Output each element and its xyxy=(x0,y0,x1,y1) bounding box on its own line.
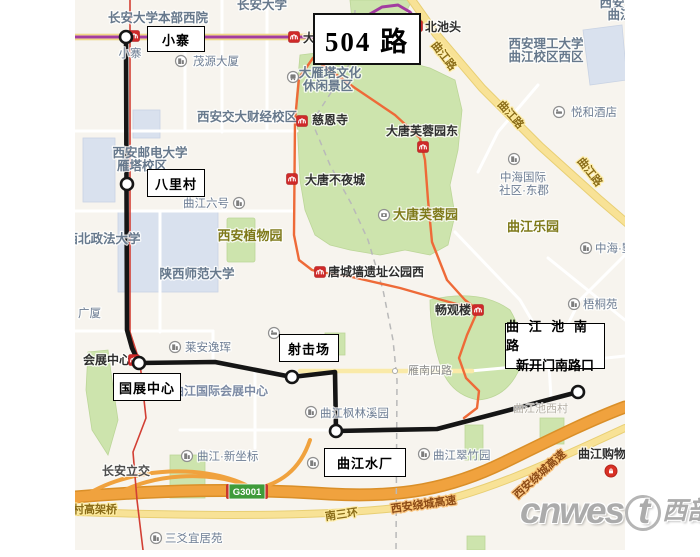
building-icon xyxy=(569,299,580,310)
stop-box-shejichang: 射击场 xyxy=(279,334,339,362)
map-label: 会展中心 xyxy=(83,352,131,367)
map-label: 曲江池西村 xyxy=(513,401,568,415)
metro-station-icon xyxy=(315,267,326,278)
map-label: 雁南四路 xyxy=(408,364,452,377)
metro-station-icon xyxy=(473,305,484,316)
shopping-icon xyxy=(605,465,617,477)
map-label: 北池头 xyxy=(425,19,461,34)
map-label: 曲江枫林溪园 xyxy=(320,406,389,420)
watermark-cjk: 西部网 xyxy=(662,497,700,525)
map-label: 西安交大财经校区 xyxy=(197,109,298,124)
map-label: 休闲景区 xyxy=(302,78,354,93)
map-label: 西北政法大学 xyxy=(75,231,141,246)
hotel-icon xyxy=(554,107,565,118)
map-label: 社区·东郡 xyxy=(499,183,549,197)
route-title: 504 路 xyxy=(325,20,409,59)
stop-box-xiaozhai: 小寨 xyxy=(147,26,205,52)
building-icon xyxy=(581,243,592,254)
map-label: 中海·墅 xyxy=(595,241,625,255)
watermark-t-ring: t xyxy=(625,495,661,531)
stop-box-terminus: 曲 江 池 南 路 新开门南路口 xyxy=(505,323,605,369)
map-label: 广厦 xyxy=(78,307,101,320)
map-label: 曲江乐园 xyxy=(507,219,559,234)
map-label: 大唐芙蓉园 xyxy=(393,207,458,222)
bus-icon xyxy=(288,72,299,83)
map-label: 唐城墙遗址公园西 xyxy=(328,264,424,279)
map-label: 西安理工大学 xyxy=(508,36,584,51)
building-icon xyxy=(151,533,162,544)
metro-station-icon xyxy=(297,116,308,127)
map-label: 大唐芙蓉园东 xyxy=(386,123,458,138)
building-icon xyxy=(306,407,317,418)
route-stop-circle xyxy=(121,178,133,190)
map-label: 大雁塔文化 xyxy=(299,65,362,80)
map-label: 陕西师范大学 xyxy=(159,266,235,281)
map-label: 曲江购物中心 xyxy=(578,446,625,461)
map-label: 慈恩寺 xyxy=(312,112,348,127)
map-label: 三爻村高架桥 xyxy=(75,502,118,516)
map-label: 曲江六号 xyxy=(183,197,229,210)
map-label: 西安植物园 xyxy=(217,228,282,243)
map-label: 长安大学本部西院 xyxy=(108,10,209,25)
route-stop-circle xyxy=(330,425,342,437)
building-icon xyxy=(419,449,430,460)
attraction-icon xyxy=(379,210,390,221)
map-label: 曲江 xyxy=(607,7,625,22)
map-label: 长安大学 xyxy=(237,0,288,12)
map-label: 曲江翠竹园 xyxy=(433,448,491,462)
stop-label: 八里村 xyxy=(155,174,197,193)
route-stop-circle xyxy=(133,357,145,369)
map-label: 西安邮电大学 xyxy=(112,145,188,160)
g3001-badge-text: G3001 xyxy=(233,487,262,498)
hotel-icon xyxy=(269,328,280,339)
stop-box-qujiangshuichang: 曲江水厂 xyxy=(324,448,406,477)
metro-station-icon xyxy=(287,174,298,185)
map-label: 曲江·新坐标 xyxy=(197,449,258,463)
map-label: 曲江国际会展中心 xyxy=(172,383,268,398)
watermark-latin: cnwes xyxy=(520,490,623,531)
stop-box-guozhanzhongxin: 国展中心 xyxy=(113,373,181,401)
building-icon xyxy=(182,451,193,462)
stop-label: 小寨 xyxy=(162,30,190,49)
building-icon xyxy=(308,458,319,469)
metro-station-icon xyxy=(418,142,429,153)
route-title-box: 504 路 xyxy=(313,13,421,65)
map-label: 茂源大厦 xyxy=(193,54,239,68)
screenshot-root: G3001长安大学长安大学本部西院西安邮电大学雁塔校区西安交大财经校区西北政法大… xyxy=(0,0,700,557)
route-stop-circle xyxy=(120,31,132,43)
stop-box-balicun: 八里村 xyxy=(147,169,205,197)
map-label: 悦和酒店 xyxy=(571,105,617,119)
building-icon xyxy=(234,198,245,209)
route-stop-circle xyxy=(572,386,584,398)
stop-label: 国展中心 xyxy=(119,378,175,397)
map-label: 三爻宜居苑 xyxy=(165,531,223,545)
map-label: 小寨 xyxy=(119,46,142,60)
building-icon xyxy=(509,154,520,165)
map-label: 大唐不夜城 xyxy=(305,172,365,187)
map-label: 曲江校区西区 xyxy=(508,49,584,64)
map-label: 莱安逸珲 xyxy=(185,340,231,354)
cnwest-watermark: cnwest西部网 xyxy=(520,490,700,532)
road-node-dot xyxy=(393,369,398,374)
map-label: 中海国际 xyxy=(500,170,546,184)
stop-label-line2: 新开门南路口 xyxy=(516,356,594,376)
stop-label-line1: 曲 江 池 南 路 xyxy=(506,317,604,356)
building-icon xyxy=(176,56,187,67)
stop-label: 射击场 xyxy=(288,339,330,358)
map-label: 长安立交 xyxy=(102,463,150,478)
map-label: 畅观楼 xyxy=(435,302,471,317)
building-icon xyxy=(170,342,181,353)
stop-label: 曲江水厂 xyxy=(337,453,393,472)
map-label: 梧桐苑 xyxy=(583,297,618,311)
metro-station-icon xyxy=(289,32,300,43)
route-stop-circle xyxy=(286,371,298,383)
